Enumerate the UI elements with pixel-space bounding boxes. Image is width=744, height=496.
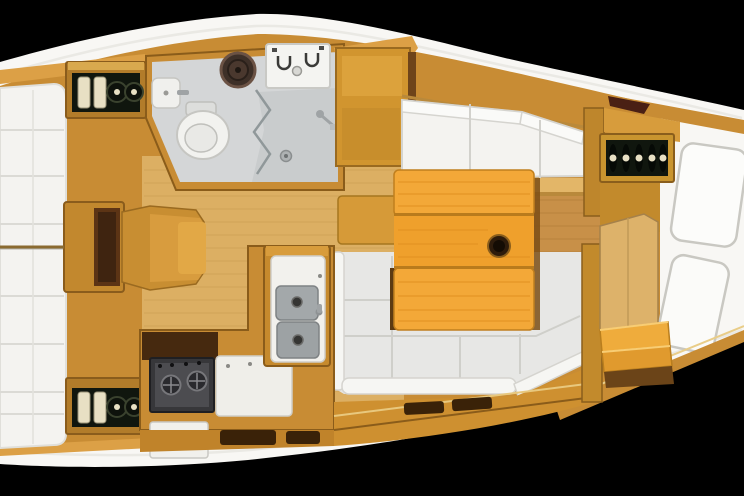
round-basin xyxy=(221,53,255,87)
sink-unit xyxy=(264,246,330,366)
footwell-recess xyxy=(220,430,276,445)
bottle-label xyxy=(649,155,656,162)
wine-rack xyxy=(600,134,674,182)
bulkhead-divider xyxy=(582,244,602,402)
cooktop xyxy=(150,358,214,412)
locker-shelf xyxy=(68,62,144,70)
cupholder-hole xyxy=(493,240,505,252)
cooktop-knob xyxy=(170,363,174,367)
latch xyxy=(226,364,230,368)
bottle-label xyxy=(623,155,630,162)
footwell-recess xyxy=(404,401,445,415)
bottle-label xyxy=(636,155,643,162)
cushion-outline xyxy=(670,142,744,248)
yacht-layout-svg: Sailing yacht interior layout plan, top-… xyxy=(0,0,744,496)
cooktop-knob xyxy=(197,361,201,365)
yacht-layout-image: Sailing yacht interior layout plan, top-… xyxy=(0,0,744,496)
sink-drain xyxy=(293,335,303,345)
bottle-label xyxy=(114,404,120,410)
bottle-label xyxy=(131,404,137,410)
bottle-label xyxy=(131,89,137,95)
seat-step-3 xyxy=(178,222,206,274)
toilet-seat xyxy=(185,124,217,152)
bottle-icon xyxy=(94,392,106,423)
stove-splash xyxy=(142,332,218,360)
tall-locker-door-bottom xyxy=(342,108,400,160)
engine-box-panel xyxy=(600,214,658,330)
stove-knob xyxy=(293,67,302,76)
footwell-recess xyxy=(286,431,320,444)
aft-berth-cushion-1 xyxy=(670,142,744,248)
table-leaf-joint xyxy=(394,213,534,216)
bottle-label xyxy=(660,155,667,162)
seat-inset-dark xyxy=(98,212,116,282)
latch xyxy=(319,46,324,50)
tall-locker-door-top xyxy=(342,56,402,96)
sink-cabinet-top xyxy=(266,246,328,256)
head-compartment xyxy=(146,44,344,190)
table-leaf-top xyxy=(394,170,534,216)
stove-top-unit xyxy=(266,44,330,88)
latch xyxy=(318,274,322,278)
table-leaf-joint xyxy=(394,266,534,269)
saloon-table xyxy=(390,170,540,330)
bottle-locker-bottom xyxy=(66,378,146,434)
step-box xyxy=(338,196,398,244)
bottle-icon xyxy=(94,77,106,108)
faucet-arm xyxy=(317,304,322,313)
cooktop-knob xyxy=(184,362,188,366)
cooktop-knob xyxy=(158,364,162,368)
washbasin-drain xyxy=(164,91,169,96)
bottle-icon xyxy=(78,392,90,423)
shower-drain-center xyxy=(284,154,288,158)
table-center xyxy=(394,216,534,268)
bottle-label xyxy=(610,155,617,162)
bottle-icon xyxy=(78,77,90,108)
bottle-label xyxy=(114,89,120,95)
latch xyxy=(248,362,252,366)
bottle-locker-top xyxy=(66,62,146,118)
round-basin-drain xyxy=(235,67,241,73)
sink-drain xyxy=(292,297,302,307)
bolster-bottom xyxy=(342,378,516,394)
latch xyxy=(272,48,277,52)
washbasin-faucet-icon xyxy=(177,90,189,95)
